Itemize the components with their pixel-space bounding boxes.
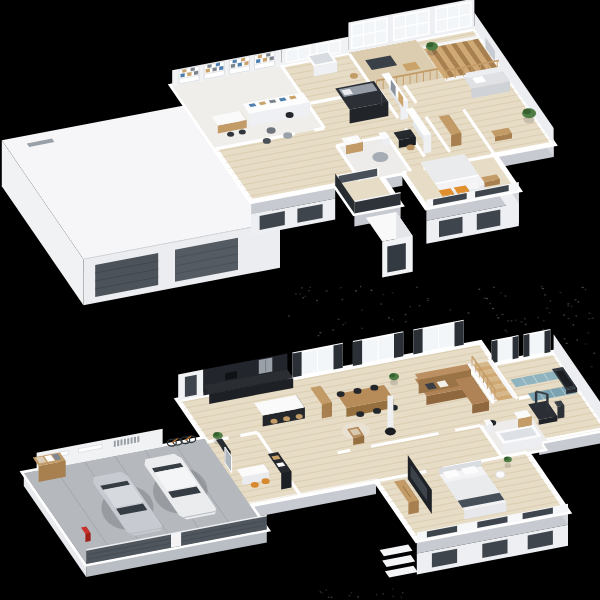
dither-dot xyxy=(342,324,344,326)
dither-dot xyxy=(449,309,451,311)
dither-dot xyxy=(400,597,402,599)
dither-dot xyxy=(507,320,509,322)
garage-vent xyxy=(137,436,139,442)
dither-dot xyxy=(585,289,587,291)
dither-dot xyxy=(316,300,318,302)
dither-dot xyxy=(350,592,352,594)
dither-dot xyxy=(542,329,544,331)
curtain xyxy=(524,334,530,357)
dither-dot xyxy=(520,321,522,323)
toilet-front xyxy=(487,424,493,432)
entry-door xyxy=(185,375,197,397)
curtain xyxy=(353,340,362,366)
dither-dot xyxy=(388,317,390,319)
plant-inner xyxy=(427,42,434,47)
dither-dot xyxy=(322,592,324,594)
dither-dot xyxy=(427,300,429,302)
dither-dot xyxy=(405,321,407,323)
dither-dot xyxy=(567,318,570,320)
garage-vent xyxy=(124,439,126,445)
bar-stool xyxy=(296,414,303,419)
dither-dot xyxy=(309,287,311,289)
curtain xyxy=(492,340,498,363)
dither-dot xyxy=(317,335,319,337)
floor-pouf xyxy=(283,132,292,138)
dither-dot xyxy=(563,314,565,316)
porch-door xyxy=(387,243,406,273)
bedroom-dresser-front xyxy=(408,501,418,515)
weight-stack-front xyxy=(557,406,564,419)
dither-dot xyxy=(504,295,506,297)
dither-dot xyxy=(571,306,573,308)
curtain xyxy=(545,330,551,353)
plant-inner xyxy=(523,109,531,115)
dither-dot xyxy=(515,320,517,322)
dither-dot xyxy=(392,319,394,321)
dither-dot xyxy=(559,292,561,294)
curtain xyxy=(413,329,422,355)
dither-dot xyxy=(349,595,351,597)
dither-dot xyxy=(575,315,577,317)
dither-dot xyxy=(302,297,304,299)
plant-shadow xyxy=(390,380,398,386)
dither-dot xyxy=(484,297,486,299)
basin xyxy=(347,138,352,142)
dither-dot xyxy=(581,287,584,289)
dither-dot xyxy=(550,300,552,302)
bar-stool xyxy=(271,419,278,424)
dither-dot xyxy=(542,288,544,290)
dither-dot xyxy=(563,338,565,340)
garage-vent xyxy=(117,440,119,446)
dither-dot xyxy=(360,286,362,288)
dining-chair xyxy=(337,391,345,397)
bar-stool xyxy=(283,416,290,421)
office-shelf-front xyxy=(281,472,291,490)
dither-dot xyxy=(404,314,406,316)
dither-dot xyxy=(345,322,347,324)
dither-dot xyxy=(325,589,327,591)
dither-dot xyxy=(590,366,592,368)
dither-dot xyxy=(304,296,306,298)
dither-dot xyxy=(328,596,330,598)
office-chair xyxy=(262,478,270,484)
dither-dot xyxy=(337,319,339,321)
dither-dot xyxy=(361,328,363,330)
dither-dot xyxy=(355,290,357,292)
dither-dot xyxy=(299,293,301,295)
dither-dot xyxy=(591,317,593,319)
dither-dot xyxy=(391,292,393,294)
dither-dot xyxy=(382,593,384,595)
bedroom-plant-inner xyxy=(504,457,508,460)
dither-dot xyxy=(540,286,542,288)
dither-dot xyxy=(546,308,549,310)
curtain xyxy=(292,352,301,378)
dither-dot xyxy=(370,289,373,291)
interior-wall xyxy=(402,172,406,173)
dither-dot xyxy=(319,332,321,334)
curtain xyxy=(513,336,519,359)
dither-dot xyxy=(418,305,420,307)
black-pouf xyxy=(286,112,294,118)
toilet-front xyxy=(383,138,391,146)
dither-dot xyxy=(567,303,569,305)
wood-chair xyxy=(407,145,415,151)
dither-dot xyxy=(489,303,491,305)
dither-dot xyxy=(325,290,327,292)
render-canvas xyxy=(0,0,600,600)
dining-chair xyxy=(370,385,378,391)
bath-rug xyxy=(372,152,388,162)
garage-vent xyxy=(131,437,133,443)
dither-dot xyxy=(331,597,333,599)
bedroom-chair xyxy=(496,471,505,478)
dither-dot xyxy=(382,294,384,296)
dining-chair xyxy=(354,388,362,394)
dither-dot xyxy=(567,305,569,307)
dither-dot xyxy=(416,286,418,288)
wood-stove xyxy=(385,428,396,436)
dither-dot xyxy=(358,596,360,598)
dither-dot xyxy=(574,299,576,301)
dither-dot xyxy=(486,298,488,300)
dither-dot xyxy=(576,339,578,341)
garage-vent xyxy=(134,437,136,443)
dither-dot xyxy=(501,314,503,316)
dither-dot xyxy=(497,317,499,319)
curtain xyxy=(334,344,343,370)
dither-dot xyxy=(588,318,591,320)
dither-dot xyxy=(549,312,551,314)
dither-dot xyxy=(361,309,363,311)
dither-dot xyxy=(504,330,506,332)
dither-dot xyxy=(341,299,343,301)
dither-dot xyxy=(392,588,394,590)
books xyxy=(194,71,198,75)
dither-dot xyxy=(376,594,378,596)
floor-pouf xyxy=(263,138,271,144)
dither-dot xyxy=(467,312,470,314)
dresser-front xyxy=(451,133,461,147)
desk-chair xyxy=(227,132,234,137)
dither-dot xyxy=(295,293,298,295)
dither-dot xyxy=(577,301,579,303)
dither-dot xyxy=(319,591,321,593)
red-vacuum-front xyxy=(85,533,90,542)
dither-dot xyxy=(340,287,342,289)
dither-dot xyxy=(587,332,589,334)
dither-dot xyxy=(572,324,574,326)
dining-chair xyxy=(373,408,381,414)
dither-dot xyxy=(301,287,303,289)
dither-dot xyxy=(543,320,545,322)
interior-wall xyxy=(314,128,324,130)
dither-dot xyxy=(588,312,590,314)
dither-dot xyxy=(332,329,334,331)
dither-dot xyxy=(308,290,310,292)
dither-dot xyxy=(506,331,508,333)
garage-vent xyxy=(114,441,116,447)
dither-dot xyxy=(288,315,290,317)
dither-dot xyxy=(585,343,587,345)
office-chair xyxy=(251,482,259,488)
desk-chair xyxy=(239,129,246,134)
dining-chair xyxy=(356,411,364,417)
dither-dot xyxy=(427,298,429,300)
dither-dot xyxy=(380,303,382,305)
dither-dot xyxy=(525,324,527,326)
dither-dot xyxy=(493,286,495,288)
open-shelf-front xyxy=(322,403,332,419)
dither-dot xyxy=(402,592,404,594)
dither-dot xyxy=(594,353,596,355)
rocking-chair xyxy=(350,73,358,79)
garage-vent xyxy=(121,439,123,445)
dither-dot xyxy=(566,342,569,344)
curtain xyxy=(394,332,403,358)
dither-dot xyxy=(478,288,480,290)
dither-dot xyxy=(392,596,394,598)
dither-dot xyxy=(492,308,495,310)
dither-dot xyxy=(409,306,411,308)
wardrobe-front xyxy=(424,134,432,153)
dither-dot xyxy=(524,318,526,320)
garage-vent xyxy=(127,438,129,444)
plant-inner xyxy=(390,373,396,377)
dither-dot xyxy=(496,314,498,316)
floorplan-render xyxy=(0,0,600,600)
dither-dot xyxy=(537,317,539,319)
dither-dot xyxy=(544,294,546,296)
floor-pouf xyxy=(267,127,276,133)
curtain xyxy=(455,321,464,347)
entry-plant-inner xyxy=(214,432,220,436)
dither-dot xyxy=(500,292,502,294)
bedroom-plant-shadow xyxy=(505,463,511,468)
dither-dot xyxy=(510,320,512,322)
